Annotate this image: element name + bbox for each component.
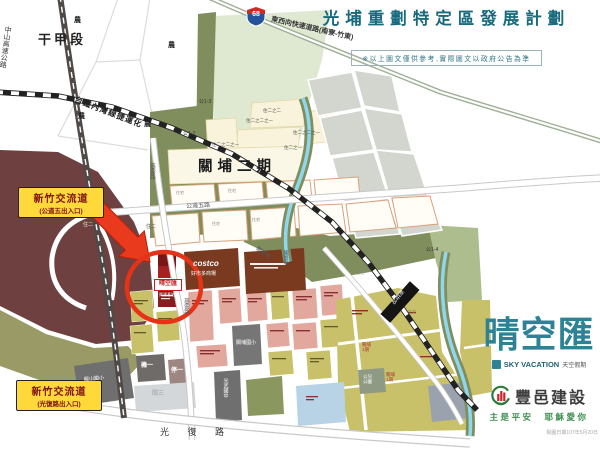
ciyun-road-label: 慈雲路 bbox=[183, 298, 189, 315]
canal-label: 隆恩圳 bbox=[282, 250, 288, 265]
guanpu1-label: 關埔1期 bbox=[362, 342, 373, 353]
zone-label: 住宅 bbox=[252, 218, 260, 222]
park-zone-label: 公1-3 bbox=[199, 100, 211, 106]
zone-label: 住二之一 bbox=[284, 146, 302, 151]
branding-block: 晴空匯 SKY VACATION 天空假期 豐邑建設 主是平安 耶穌愛你 製圖日… bbox=[480, 306, 598, 436]
park-label: 公兒公園 bbox=[363, 374, 374, 385]
map-poster: 干甲段 農 農 農 農 中山高速公路 台鐵內灣線捷運化 東西向快速道路(南寮-竹… bbox=[0, 0, 600, 449]
title-block: 光埔重劃特定區發展計劃 ※以上圖文僅供參考,實際圖文以政府公告為準 bbox=[295, 5, 598, 66]
interchange-badge-guangfu: 新竹交流道 (光復路出入口) bbox=[16, 380, 102, 411]
farm-label: 農 bbox=[78, 113, 85, 121]
block-label-guan3: 關三 bbox=[152, 391, 164, 398]
project-logo: 晴空匯 bbox=[480, 306, 598, 358]
project-logo-en-row: SKY VACATION 天空假期 bbox=[480, 360, 598, 369]
builder-name: 豐邑建設 bbox=[515, 384, 587, 408]
disclaimer: ※以上圖文僅供參考,實際圖文以政府公告為準 bbox=[351, 50, 541, 66]
builder-logo-icon bbox=[491, 385, 511, 407]
ciyun-road-label: 慈雲路 bbox=[149, 163, 155, 180]
route-68-number: 68 bbox=[247, 11, 265, 19]
farm-label: 農 bbox=[74, 17, 81, 25]
poster-title: 光埔重劃特定區發展計劃 bbox=[295, 5, 598, 29]
zone-label: 住宅 bbox=[212, 222, 220, 226]
interchange-name: 新竹交流道 bbox=[22, 190, 100, 205]
site-sub-label: 興建基地 bbox=[159, 293, 175, 297]
guanpu-phase2-label: 關埔二期 bbox=[198, 160, 276, 176]
block-label-ji1: 機一 bbox=[141, 363, 153, 370]
zone-label: 住二之二之一 bbox=[212, 143, 239, 148]
interchange-name: 新竹交流道 bbox=[20, 383, 98, 398]
zone-label: 住二之二之一 bbox=[293, 131, 320, 136]
zone-label: 住宅 bbox=[408, 310, 416, 314]
guangfu-road-label: 光 復 路 bbox=[160, 428, 232, 438]
interchange-exit: (公道五出入口) bbox=[22, 205, 100, 215]
builder-slogan: 主是平安 耶穌愛你 bbox=[480, 411, 598, 423]
block-label-ting1: 停一 bbox=[171, 368, 183, 375]
district-label: 干甲段 bbox=[38, 33, 86, 47]
guanpu1-label: 關埔1期 bbox=[386, 372, 397, 383]
school-label-guanpu: 關埔國小 bbox=[236, 341, 256, 347]
project-name-sub: 天空假期 bbox=[562, 360, 586, 369]
costco-block bbox=[184, 248, 240, 290]
gongdao5-road-label: 公道五路 bbox=[186, 203, 210, 211]
park-zone-label: 公1-2 bbox=[183, 132, 195, 138]
costco-logo-text: costco bbox=[193, 260, 219, 269]
farm-label: 農 bbox=[168, 42, 175, 50]
interchange-badge-gongdao5: 新竹交流道 (公道五出入口) bbox=[18, 187, 104, 218]
school-label-guangwu: 光武國中 bbox=[222, 378, 228, 398]
farm-label: 農 bbox=[144, 121, 151, 129]
zone-label: 住二 bbox=[146, 225, 156, 231]
project-name-en: SKY VACATION bbox=[504, 360, 559, 369]
zone-label: 住二 bbox=[83, 223, 93, 229]
builder-row: 豐邑建設 bbox=[480, 384, 598, 408]
zone-label: 住宅 bbox=[176, 191, 184, 195]
mall-block bbox=[244, 248, 306, 294]
brand-mark-icon bbox=[492, 360, 501, 369]
zone-label: 住二之二之一 bbox=[246, 119, 273, 124]
park-zone-label: 公1-4 bbox=[426, 248, 438, 254]
site-name-box: 晴空匯 bbox=[154, 279, 182, 291]
zone-label: 住二之二 bbox=[263, 109, 281, 114]
zone-label: 住宅 bbox=[356, 271, 364, 275]
costco-zh-label: 好市多商場 bbox=[191, 272, 216, 278]
zone-label: 住宅 bbox=[228, 189, 236, 193]
interchange-exit: (光復路出入口) bbox=[20, 398, 98, 408]
date-note: 製圖日期107年5月20日 bbox=[480, 429, 598, 436]
